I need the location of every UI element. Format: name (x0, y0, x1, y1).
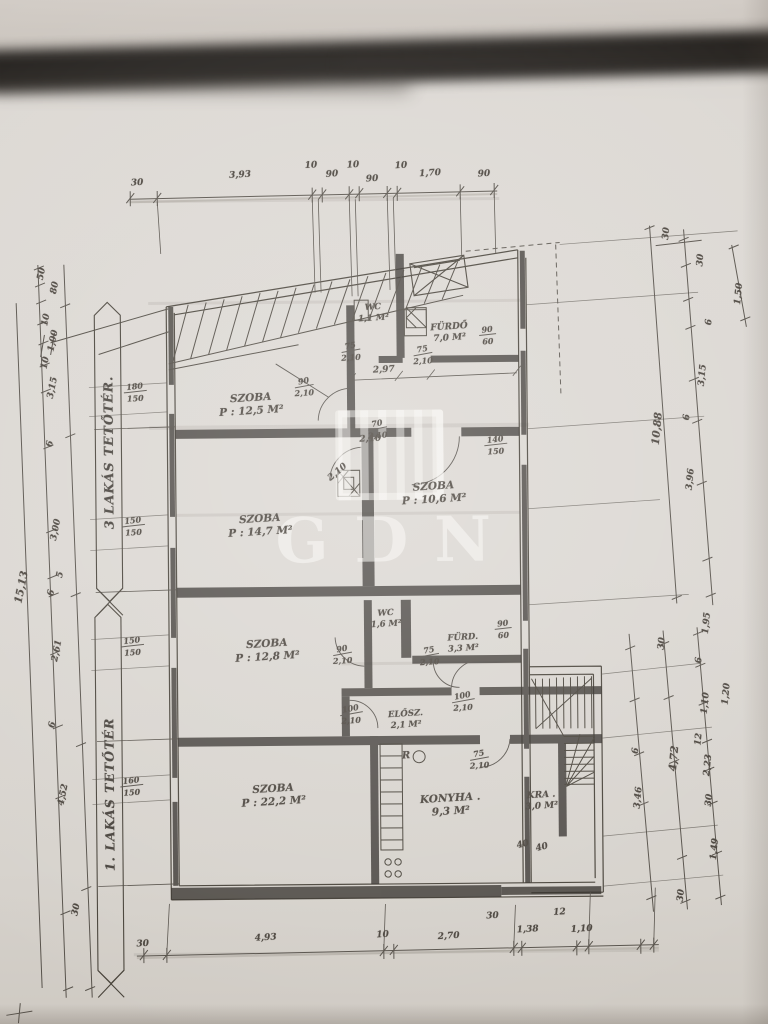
room-label-szoba-222: SZOBAP : 22,2 M² (240, 781, 306, 811)
room-label-konyha-93: KONYHA .9,3 M² (420, 790, 482, 820)
room-label-elosz-21: ELŐSZ.2,1 M² (388, 708, 424, 731)
door-size-label: 752,10 (412, 343, 433, 366)
window-size-label: 140150 (483, 433, 507, 456)
window-size-label: 9060 (478, 324, 496, 347)
window-size-label: 150150 (121, 515, 145, 538)
dim-label: 90 (366, 174, 379, 185)
door-size-label: 1002,10 (451, 690, 475, 713)
window-size-label: 9060 (494, 617, 512, 640)
door-size-label: 902,10 (294, 375, 315, 398)
dim-label: 6 (682, 414, 693, 421)
dim-label: 1,49 (709, 838, 721, 861)
room-label-kamra-30: KRA .3,0 M² (525, 789, 559, 813)
room-label-szoba-128: SZOBAP : 12,8 M² (234, 636, 300, 666)
window-size-label: 150150 (120, 635, 144, 658)
dim-label: 10 (376, 930, 389, 941)
dim-label: 4,93 (254, 932, 276, 943)
dim-label: 2,23 (702, 754, 714, 777)
door-size-label: 752,10 (469, 748, 490, 771)
dim-label: 30 (704, 793, 715, 806)
room-label-wc-11: WC1,1 M² (357, 302, 389, 325)
interior-dim-label: 2,10 (359, 433, 381, 444)
interior-dim-label: 2,97 (373, 364, 395, 375)
banner-1-lakas-tetoter: 1. LAKÁS TETŐTÉR (101, 718, 117, 872)
dim-label: 1,38 (516, 924, 538, 935)
dim-label: 3,96 (685, 468, 697, 491)
roof-overhang-dashed (466, 242, 561, 397)
dim-label: 30 (131, 178, 144, 189)
dim-label: 6 (704, 319, 715, 326)
room-label-szoba-106: SZOBAP : 10,6 M² (401, 478, 467, 508)
room-label-furd-33: FÜRD.3,3 M² (447, 632, 479, 655)
door-size-label: 752,10 (419, 644, 440, 667)
gdn-watermark-text: GDN (275, 502, 517, 577)
dim-label: 12 (553, 907, 566, 918)
room-label-szoba-125: SZOBAP : 12,5 M² (218, 390, 284, 420)
photo-bottom-shadow (0, 1004, 768, 1024)
dim-label: 12 (693, 733, 704, 746)
dim-label: 90 (325, 169, 338, 180)
dim-label: 3,93 (229, 170, 251, 181)
dim-label: 1,20 (721, 683, 733, 706)
scanned-floorplan-photo: 3 LAKÁS TETŐTÉR. 1. LAKÁS TETŐTÉR GDN 30… (0, 0, 768, 1024)
window-size-label: 180150 (123, 380, 147, 403)
door-size-label: 902,10 (332, 643, 353, 666)
photo-right-shadow (742, 0, 768, 1024)
floor-plan: 3 LAKÁS TETŐTÉR. 1. LAKÁS TETŐTÉR GDN 30… (0, 0, 768, 1024)
dim-label: 10 (304, 160, 317, 171)
dim-label: 30 (657, 637, 668, 650)
banner-3-lakas-tetoter: 3 LAKÁS TETŐTÉR. (100, 376, 116, 530)
room-label-wc-16: WC1,6 M² (370, 607, 402, 630)
dim-label: 30 (486, 911, 499, 922)
door-size-label: 752,10 (340, 340, 361, 363)
dim-label: 1,95 (701, 612, 713, 635)
kitchen-cabinets (380, 744, 426, 878)
dim-label: 30 (661, 227, 672, 240)
dim-label: 1,10 (570, 924, 592, 935)
dim-label: 2,70 (437, 931, 459, 942)
dim-label: 3,46 (632, 786, 644, 809)
dim-label: 10 (394, 160, 407, 171)
dim-label: 30 (695, 254, 706, 267)
dim-label: 30 (136, 939, 149, 950)
dim-label: 90 (477, 169, 490, 180)
dim-total-label: 4,72 (667, 745, 681, 772)
dim-label: 10 (346, 160, 359, 171)
dim-label: 6 (631, 747, 642, 754)
dim-label: 1,70 (419, 168, 441, 179)
radiator-mark: R (402, 750, 411, 761)
dim-label: 3,15 (697, 364, 709, 387)
window-size-label: 160150 (119, 775, 143, 798)
dim-label: 6 (694, 657, 705, 664)
room-label-furdo-70: FÜRDŐ7,0 M² (430, 321, 469, 346)
radiator-circle (413, 751, 425, 763)
dim-label: 30 (676, 889, 687, 902)
room-label-szoba-147: SZOBAP : 14,7 M² (227, 511, 293, 541)
dim-label: 1,10 (700, 692, 712, 715)
door-size-label: 1002,10 (339, 703, 363, 726)
